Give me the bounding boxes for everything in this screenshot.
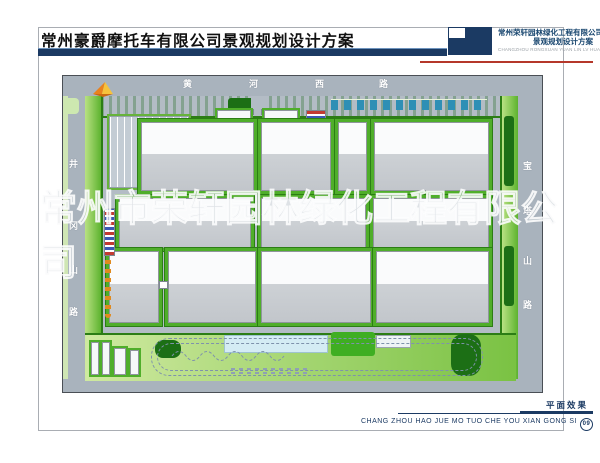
factory-building: [373, 198, 489, 248]
gate-post: [251, 109, 254, 115]
company-name: 常州荣轩园林绿化工程有限公司: [498, 28, 593, 37]
factory-building: [376, 251, 489, 323]
factory-building: [261, 198, 366, 248]
utility-building: [114, 348, 126, 375]
road-label-baotashan-char: 塔: [523, 207, 532, 216]
page-number-badge: 09: [580, 418, 593, 431]
company-pinyin: CHANGZHOU RONGXUAN YUAN LIN LV HUA: [498, 46, 593, 53]
road-label-jinggangshan-char: 冈: [69, 222, 78, 231]
factory-campus: [85, 96, 516, 379]
road-label-huanghe-char: 黄: [183, 80, 192, 89]
utility-building: [130, 350, 139, 375]
footer-pinyin: CHANG ZHOU HAO JUE MO TUO CHE YOU XIAN G…: [300, 418, 593, 431]
utility-building: [102, 342, 110, 375]
parking-stalls-row: [331, 99, 487, 110]
factory-building: [261, 251, 371, 323]
logo-notch: [448, 27, 467, 40]
roadside-verge: [63, 96, 68, 379]
factory-building: [119, 198, 251, 248]
gatehouse-building: [217, 110, 251, 121]
building-connector: [159, 281, 168, 289]
factory-building: [168, 251, 256, 323]
road-label-huanghe-char: 路: [379, 80, 388, 89]
road-label-huanghe-char: 西: [315, 80, 324, 89]
company-logo-block: [448, 27, 492, 55]
factory-building: [374, 122, 489, 191]
title-underline-bar: [38, 48, 447, 56]
tree-row: [504, 246, 514, 306]
road-label-baotashan-char: 宝: [523, 162, 532, 171]
scheme-subtitle: 景观规划设计方案: [498, 37, 593, 46]
site-plan-map: 黄 河 西 路 井 冈 山 路 宝 塔 山 路: [62, 75, 543, 393]
road-label-baotashan-char: 路: [523, 301, 532, 310]
header-accent-line: [420, 61, 593, 63]
header-right-block: 常州荣轩园林绿化工程有限公司 景观规划设计方案 CHANGZHOU RONGXU…: [498, 28, 593, 53]
street-trees: [105, 258, 111, 318]
footer-pinyin-text: CHANG ZHOU HAO JUE MO TUO CHE YOU XIAN G…: [361, 418, 577, 425]
road-label-baotashan-char: 山: [523, 257, 532, 266]
utility-building: [91, 342, 99, 375]
factory-building: [141, 122, 254, 191]
track-dashes: [231, 368, 311, 370]
compass-icon: [91, 80, 115, 98]
road-label-jinggangshan-char: 山: [69, 266, 78, 275]
road-label-huanghe-char: 河: [249, 80, 258, 89]
factory-building: [338, 122, 367, 191]
road-label-jinggangshan-char: 路: [69, 308, 78, 317]
footer-line-thick: [520, 411, 593, 414]
tree-row: [504, 116, 514, 186]
road-label-jinggangshan-char: 井: [69, 160, 78, 169]
parked-cars: [104, 208, 115, 256]
view-label: 平面效果: [546, 399, 588, 411]
track-dashes: [231, 372, 311, 374]
gatehouse-building: [264, 110, 298, 121]
intersection-green-corner: [64, 98, 79, 114]
track-wave-section: [170, 348, 290, 362]
factory-building: [261, 122, 331, 191]
factory-building: [109, 251, 159, 323]
